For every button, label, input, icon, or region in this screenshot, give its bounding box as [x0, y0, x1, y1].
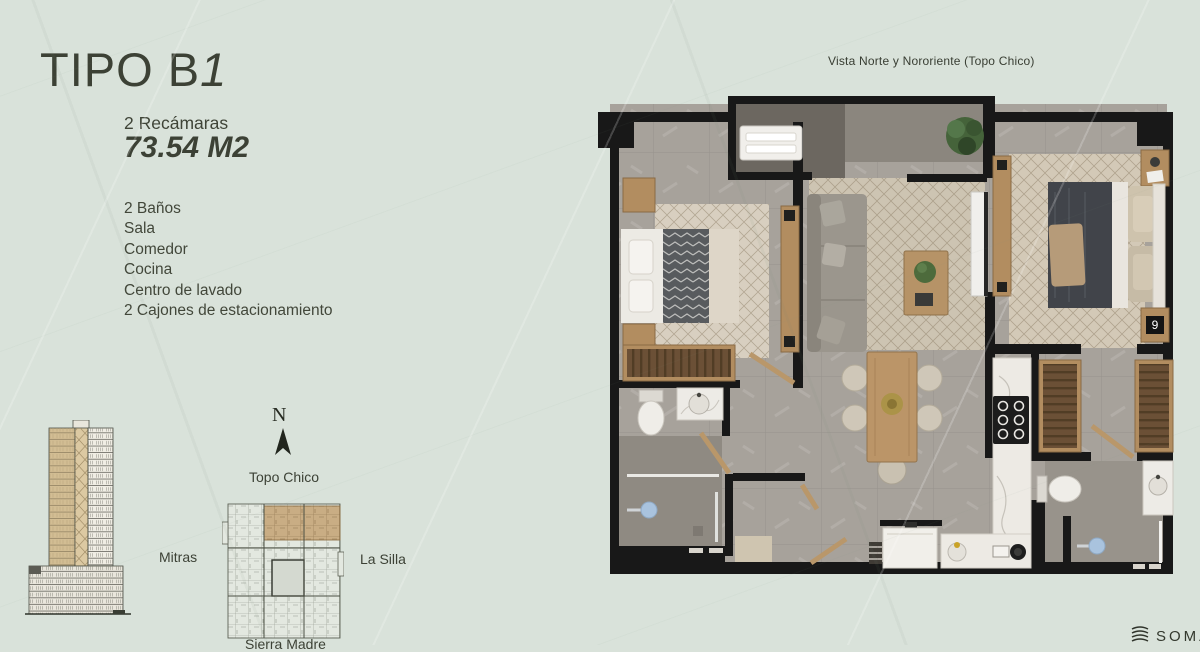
page-title: TIPO B1	[40, 42, 227, 97]
sink	[677, 388, 723, 420]
wardrobe-b	[1135, 360, 1173, 452]
bed1	[621, 229, 739, 323]
wardrobe-a	[1039, 360, 1081, 452]
nightstand-clock: 9	[1141, 308, 1169, 342]
sink2	[1143, 461, 1173, 515]
bath-mat	[735, 536, 772, 566]
mitras-label: Mitras	[159, 549, 197, 565]
compass-arrow-icon	[272, 427, 294, 457]
area-label: 73.54 M2	[124, 131, 249, 165]
nightstand	[623, 178, 655, 212]
feature-item: 2 Cajones de estacionamiento	[124, 301, 333, 321]
topo-chico-label: Topo Chico	[249, 469, 319, 485]
media-column	[993, 156, 1011, 296]
dining-table	[867, 352, 917, 462]
bed2	[1048, 182, 1165, 310]
toilet2	[1037, 476, 1081, 502]
features-list: 2 Baños Sala Comedor Cocina Centro de la…	[124, 199, 333, 321]
view-orientation-label: Vista Norte y Nororiente (Topo Chico)	[828, 54, 1035, 68]
clock-display: 9	[1152, 318, 1159, 332]
building-core	[272, 560, 304, 596]
feature-item: 2 Baños	[124, 199, 333, 219]
soma-logo-icon	[1130, 626, 1150, 642]
washer	[883, 522, 937, 568]
entry-console	[740, 126, 802, 160]
console-bench	[781, 206, 799, 352]
potted-plant	[946, 117, 984, 155]
nightstand-top	[1141, 150, 1169, 186]
sofa	[807, 194, 867, 352]
headboard	[1153, 184, 1165, 310]
closet1	[623, 345, 735, 381]
building-elevation	[25, 420, 131, 622]
kitchen-counter	[993, 358, 1031, 554]
sierra-madre-label: Sierra Madre	[245, 636, 326, 652]
page-title-suffix: 1	[200, 43, 227, 96]
floor-plate-map	[222, 492, 344, 645]
feature-item: Centro de lavado	[124, 281, 333, 301]
feature-item: Sala	[124, 219, 333, 239]
stove	[993, 396, 1029, 444]
floorplan-render: 9	[597, 96, 1177, 580]
soma-logo: SOMA	[1130, 626, 1200, 645]
page-title-prefix: TIPO B	[40, 43, 200, 96]
floor-plate-highlight	[264, 506, 340, 540]
feature-item: Comedor	[124, 240, 333, 260]
shower-room-floor	[619, 436, 722, 548]
la-silla-label: La Silla	[360, 551, 406, 567]
brochure-page: { "header": { "title_prefix": "TIPO B", …	[0, 0, 1200, 645]
coffee-table	[904, 251, 948, 315]
soma-logo-text: SOMA	[1156, 626, 1200, 645]
feature-item: Cocina	[124, 260, 333, 280]
toilet	[638, 390, 664, 435]
kitchen-island	[941, 534, 1031, 568]
compass-north-label: N	[272, 404, 286, 427]
